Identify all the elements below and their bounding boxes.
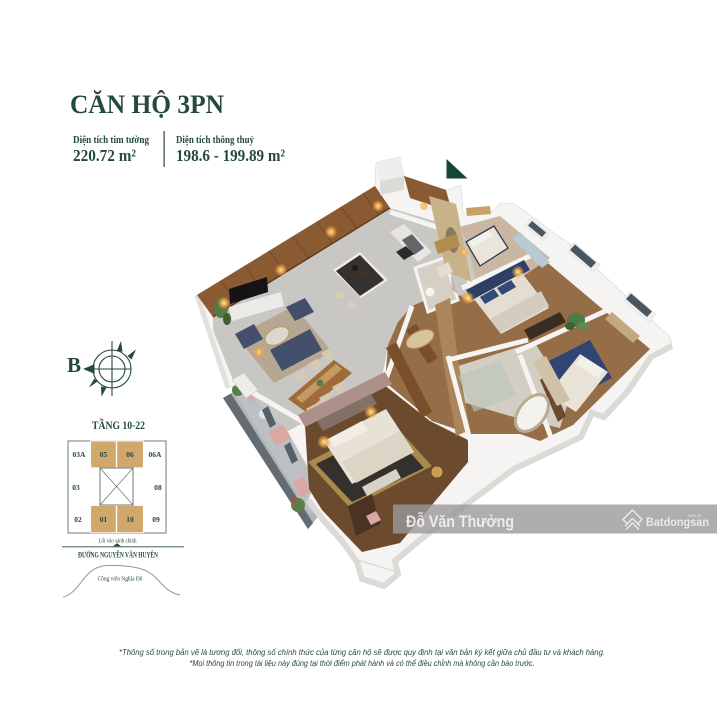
svg-text:Diện tích tim tường: Diện tích tim tường (73, 134, 149, 146)
svg-text:Đỗ Văn Thưởng: Đỗ Văn Thưởng (406, 512, 514, 531)
svg-text:10: 10 (126, 515, 134, 524)
svg-text:06: 06 (126, 450, 134, 459)
svg-text:01: 01 (100, 515, 108, 524)
svg-text:*Mọi thông tin trong tài liệu: *Mọi thông tin trong tài liệu này đúng t… (190, 659, 535, 668)
svg-text:*Thông số trong bản vẽ là tươn: *Thông số trong bản vẽ là tương đối, thô… (119, 648, 605, 657)
svg-text:ĐƯỜNG NGUYỄN VĂN HUYÊN: ĐƯỜNG NGUYỄN VĂN HUYÊN (78, 550, 158, 560)
svg-text:08: 08 (154, 483, 162, 492)
svg-text:220.72 m²: 220.72 m² (73, 146, 136, 165)
svg-text:B: B (67, 353, 81, 377)
svg-text:03: 03 (72, 483, 80, 492)
svg-text:198.6 - 199.89 m²: 198.6 - 199.89 m² (176, 146, 285, 165)
svg-text:Diện tích thông thuỷ: Diện tích thông thuỷ (176, 134, 254, 146)
svg-text:02: 02 (74, 515, 82, 524)
svg-text:Batdongsan: Batdongsan (646, 517, 709, 529)
svg-text:09: 09 (152, 515, 160, 524)
svg-text:Lối vào sảnh chính: Lối vào sảnh chính (99, 538, 138, 545)
svg-text:06A: 06A (149, 450, 163, 459)
svg-text:Công viên Nghĩa Đô: Công viên Nghĩa Đô (98, 576, 143, 583)
svg-text:05: 05 (100, 450, 108, 459)
svg-text:com.vn: com.vn (688, 513, 702, 518)
svg-text:TẦNG 10-22: TẦNG 10-22 (92, 417, 145, 432)
svg-text:CĂN HỘ 3PN: CĂN HỘ 3PN (70, 89, 224, 119)
svg-text:03A: 03A (73, 450, 87, 459)
